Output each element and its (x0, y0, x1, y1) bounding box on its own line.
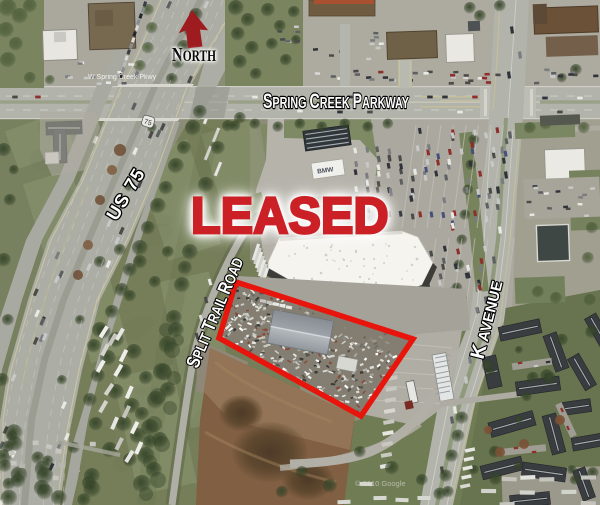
svg-text:W Spring Creek Pkwy: W Spring Creek Pkwy (88, 74, 157, 81)
svg-text:© 2010 Google: © 2010 Google (355, 479, 406, 488)
